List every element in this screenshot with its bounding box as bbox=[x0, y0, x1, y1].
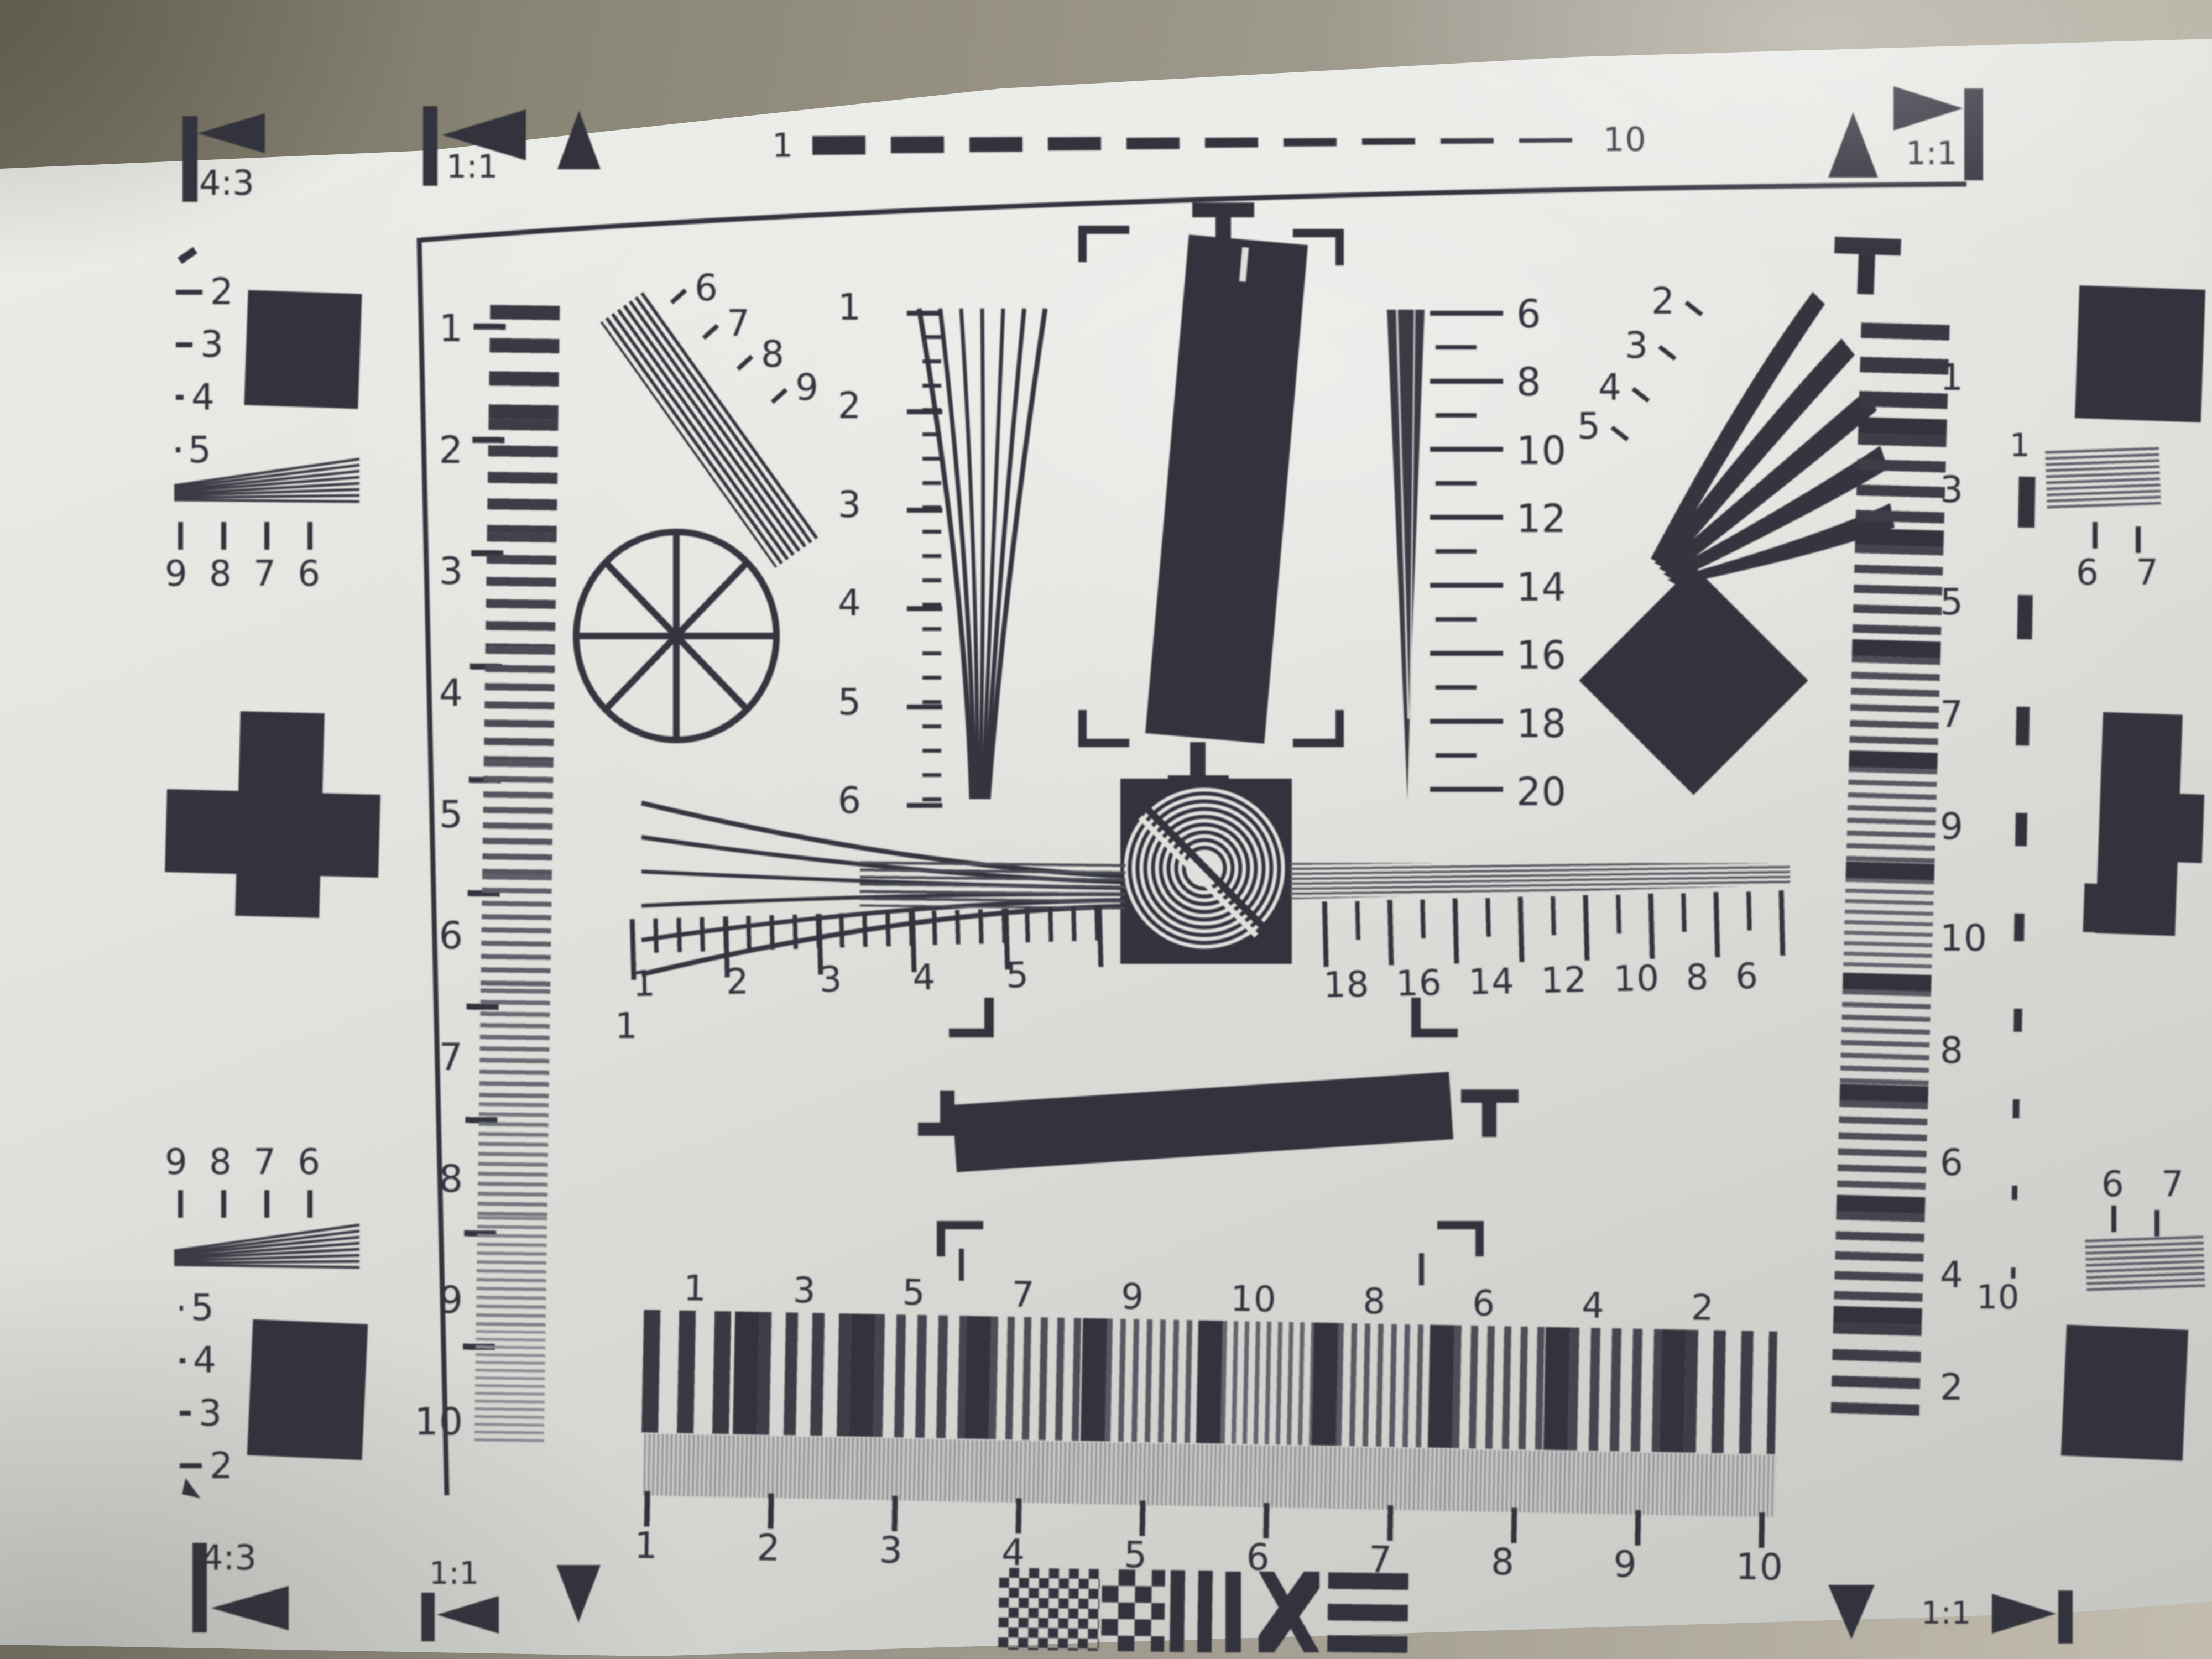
ruler-label: 12 bbox=[1541, 962, 1588, 999]
aspect-ratio-label: 4:3 bbox=[199, 166, 254, 200]
scale-label: 14 bbox=[1516, 568, 1610, 607]
black-square-patch bbox=[247, 1319, 368, 1460]
aspect-ratio-label: 1:1 bbox=[429, 1558, 479, 1589]
ruler-label: 18 bbox=[1323, 967, 1370, 1004]
dash bbox=[1441, 138, 1494, 144]
chart-logo-patterns bbox=[998, 1568, 1408, 1655]
depth-label: 3 bbox=[199, 1395, 222, 1432]
depth-scale-row: 2 bbox=[176, 274, 253, 310]
dash bbox=[1284, 138, 1337, 147]
scale-label: 5 bbox=[1940, 584, 1995, 620]
test-chart-artwork: 4:3 1:1 1:1 1 10 2345 9876 9876 5432 4:3 bbox=[0, 0, 2212, 1659]
scale-label: 7 bbox=[2136, 555, 2159, 591]
black-shape bbox=[2083, 883, 2107, 932]
ruler-label: 2 bbox=[757, 1530, 781, 1567]
depth-scale-row: 4 bbox=[176, 379, 253, 416]
scale-label: 4 bbox=[838, 585, 862, 622]
right-dash-scale-start: 1 bbox=[2010, 429, 2031, 461]
scale-label: 1 bbox=[838, 289, 862, 326]
depth-label: 2 bbox=[210, 274, 234, 310]
ruler-label: 6 bbox=[439, 917, 463, 955]
ruler-origin-label: 1 bbox=[615, 1009, 638, 1044]
scale-label: 9 bbox=[165, 556, 188, 592]
fine-checkerboard bbox=[998, 1568, 1100, 1651]
aspect-marker-1-1-bottom-right: 1:1 bbox=[1921, 1590, 2098, 1651]
coarse-checkerboard bbox=[1101, 1569, 1165, 1652]
diagonal-wedge-label: 6 bbox=[669, 270, 718, 306]
scale-label: 2 bbox=[1651, 283, 1675, 320]
ruler-label: 1 bbox=[439, 310, 463, 348]
scale-label: 7 bbox=[1011, 1277, 1035, 1313]
ruler-label: 5 bbox=[439, 796, 463, 834]
scale-label: 9 bbox=[165, 1145, 188, 1180]
depth-label: 2 bbox=[210, 1448, 233, 1484]
ruler-label: 6 bbox=[1735, 959, 1759, 995]
depth-scale-row: 4 bbox=[180, 1342, 257, 1379]
aspect-marker-1-1-bottom-left: 1:1 bbox=[421, 1556, 532, 1639]
depth-dash bbox=[180, 1306, 183, 1311]
black-cross-shape bbox=[165, 789, 380, 878]
scale-label: 5 bbox=[1577, 408, 1601, 445]
tick bbox=[2111, 1206, 2116, 1232]
ruler-label: 10 bbox=[414, 1404, 463, 1441]
scale-label: 8 bbox=[209, 556, 232, 592]
aspect-marker-4-3-bottom-left: 4:3 bbox=[192, 1541, 336, 1635]
black-shape bbox=[2095, 712, 2183, 936]
marker-bar bbox=[423, 106, 437, 186]
depth-scale-row: 5 bbox=[180, 1290, 257, 1326]
aspect-marker-4-3-top-left: 4:3 bbox=[182, 113, 348, 202]
wedge-scale-labels-bottom-left: 9876 bbox=[165, 1145, 321, 1180]
diagonal-wedge-label: 9 bbox=[770, 369, 819, 406]
curved-fan-label: 3 bbox=[1625, 327, 1677, 364]
scale-label: 8 bbox=[1363, 1284, 1386, 1320]
aspect-ratio-label: 1:1 bbox=[1921, 1598, 1971, 1629]
scale-label: 5 bbox=[902, 1275, 926, 1311]
depth-label: 4 bbox=[193, 1342, 217, 1379]
dash bbox=[1048, 137, 1101, 150]
scale-label: 7 bbox=[253, 1145, 276, 1180]
scale-label: 12 bbox=[1516, 499, 1610, 538]
aspect-marker-1-1-top-right: 1:1 bbox=[1893, 84, 2032, 184]
marker-bar bbox=[421, 1593, 435, 1641]
scale-label: 6 bbox=[2101, 1167, 2125, 1202]
scale-label: 4 bbox=[1582, 1288, 1605, 1324]
scale-label: 10 bbox=[1230, 1281, 1277, 1318]
right-edge-pair-labels: 67 bbox=[2101, 1167, 2184, 1202]
scale-label: 1 bbox=[1940, 359, 1995, 396]
top-dash-scale: 1 10 bbox=[772, 118, 1662, 166]
right-edge-pair-labels: 67 bbox=[2076, 555, 2159, 591]
dash bbox=[812, 135, 865, 155]
ruler-label: 8 bbox=[1491, 1544, 1515, 1581]
right-wedge-scale-labels: 68101214161820 bbox=[1516, 295, 1610, 811]
tick bbox=[737, 355, 754, 371]
tick bbox=[1631, 387, 1650, 403]
marker-bar bbox=[192, 1543, 207, 1632]
flag-triangle-icon bbox=[211, 1586, 289, 1630]
tick bbox=[1610, 426, 1629, 441]
vertical-bars-pattern bbox=[1170, 1570, 1215, 1652]
scale-label: 7 bbox=[2161, 1167, 2184, 1202]
black-square-patch bbox=[2061, 1324, 2188, 1460]
curved-fan-label: 2 bbox=[1651, 283, 1704, 320]
depth-dash bbox=[176, 342, 192, 347]
scale-label: 2 bbox=[838, 388, 862, 424]
scale-label: 6 bbox=[298, 1145, 321, 1180]
scale-label: 8 bbox=[209, 1145, 232, 1180]
scale-label: 6 bbox=[1516, 295, 1610, 333]
curved-fan-label: 4 bbox=[1598, 369, 1651, 406]
flag-triangle-icon bbox=[1992, 1594, 2056, 1634]
grating-patch bbox=[2085, 1235, 2205, 1293]
depth-dash bbox=[180, 1463, 202, 1468]
depth-label: 4 bbox=[191, 379, 215, 416]
ruler-label: 3 bbox=[879, 1532, 903, 1569]
ruler-label: 4 bbox=[439, 675, 463, 712]
scale-label: 3 bbox=[792, 1273, 816, 1309]
scale-label: 8 bbox=[1516, 363, 1610, 401]
scale-label: 4 bbox=[1598, 369, 1622, 406]
vertical-wedge-scale-labels: 123456 bbox=[813, 289, 862, 819]
ruler-label: 8 bbox=[1686, 960, 1709, 996]
left-ruler-labels: 12345678910 bbox=[410, 310, 463, 1441]
aspect-marker-1-1-top-mid: 1:1 bbox=[423, 106, 550, 189]
marker-bar bbox=[1964, 88, 1983, 180]
scale-label: 5 bbox=[838, 684, 862, 721]
ruler-label: 10 bbox=[1735, 1548, 1783, 1586]
ruler-label: 3 bbox=[439, 553, 463, 591]
ruler-label: 9 bbox=[1613, 1546, 1637, 1583]
fan-wedge-bottom-left bbox=[174, 1225, 359, 1267]
band-tick bbox=[1419, 1253, 1424, 1285]
depth-dash bbox=[180, 1358, 185, 1363]
flag-triangle-icon bbox=[1893, 86, 1963, 131]
depth-scale-top-left: 2345 bbox=[176, 274, 253, 468]
tick bbox=[2154, 1210, 2159, 1237]
ruler-label: 5 bbox=[1005, 958, 1029, 994]
tick bbox=[670, 289, 687, 305]
curved-fan-label: 5 bbox=[1577, 408, 1630, 445]
flag-triangle-icon bbox=[437, 1596, 499, 1634]
scale-label: 6 bbox=[1940, 1145, 1995, 1181]
diagonal-wedge-label: 8 bbox=[735, 336, 785, 373]
ruler-label: 4 bbox=[912, 960, 936, 996]
marker-bar bbox=[2058, 1590, 2073, 1644]
tick bbox=[2136, 526, 2141, 553]
depth-dash bbox=[176, 395, 184, 400]
ruler-label: 6 bbox=[1246, 1539, 1270, 1576]
marker-bar bbox=[182, 116, 197, 202]
scale-label: 6 bbox=[1472, 1286, 1496, 1322]
scale-label: 9 bbox=[1940, 808, 1995, 845]
scale-label: 6 bbox=[298, 556, 321, 592]
ruler-label: 9 bbox=[439, 1282, 463, 1319]
ruler-label: 5 bbox=[1124, 1537, 1148, 1574]
down-triangle-icon bbox=[1828, 1585, 1875, 1639]
tapering-needle bbox=[1387, 310, 1425, 801]
dash bbox=[1205, 137, 1258, 148]
down-triangle-icon bbox=[556, 1565, 601, 1623]
dash bbox=[969, 137, 1022, 152]
aspect-ratio-label: 1:1 bbox=[1906, 137, 1957, 169]
scale-label: 18 bbox=[1516, 705, 1610, 743]
depth-scale-row: 5 bbox=[176, 432, 253, 468]
ruler-label: 8 bbox=[439, 1161, 463, 1198]
tick bbox=[2093, 522, 2098, 549]
scale-label: 6 bbox=[838, 782, 862, 819]
aspect-ratio-label: 1:1 bbox=[446, 150, 498, 182]
black-shape bbox=[2176, 794, 2204, 863]
ruler-label: 3 bbox=[819, 962, 843, 998]
zone-plate-target bbox=[1120, 779, 1292, 964]
tick-row bbox=[178, 1190, 316, 1218]
scale-label: 7 bbox=[253, 556, 276, 592]
depth-dash bbox=[176, 447, 180, 452]
scale-label: 6 bbox=[2076, 555, 2099, 591]
wedge-scale-labels-top-left: 9876 bbox=[165, 556, 321, 592]
flag-triangle-icon bbox=[197, 113, 265, 153]
scale-label: 3 bbox=[838, 487, 862, 523]
ruler-label: 1 bbox=[634, 1527, 659, 1564]
dash bbox=[891, 136, 944, 153]
scale-label: 8 bbox=[761, 336, 785, 373]
black-square-patch bbox=[244, 290, 362, 409]
band-tick bbox=[959, 1249, 964, 1281]
dash bbox=[1126, 137, 1180, 149]
up-triangle-icon bbox=[1828, 112, 1878, 178]
depth-label: 5 bbox=[188, 432, 212, 468]
right-wedge-short-ticks bbox=[1436, 345, 1477, 799]
depth-dash bbox=[180, 1411, 191, 1416]
depth-scale-row: 3 bbox=[180, 1395, 257, 1432]
grating-patch bbox=[2045, 447, 2161, 510]
dash bbox=[1519, 138, 1572, 143]
ruler-label: 2 bbox=[726, 964, 749, 1000]
photo-of-resolution-test-chart: { "colors": {"ink":"#32333d","paper":"#d… bbox=[0, 0, 2212, 1659]
scale-label: 9 bbox=[1121, 1279, 1145, 1315]
frequency-bar-band bbox=[641, 1310, 1777, 1454]
depth-scale-bottom-left: 5432 bbox=[180, 1290, 257, 1484]
tick bbox=[702, 324, 719, 340]
diagonal-pattern-space bbox=[1214, 1571, 1321, 1654]
ruler-label: 4 bbox=[1001, 1535, 1025, 1572]
horizontal-bars-pattern bbox=[1327, 1572, 1408, 1655]
scale-start-label: 1 bbox=[772, 129, 794, 162]
ruler-label: 7 bbox=[439, 1039, 463, 1077]
depth-scale-row: 3 bbox=[176, 326, 253, 363]
scale-label: 2 bbox=[1691, 1290, 1714, 1326]
tick bbox=[1684, 301, 1703, 316]
ruler-label: 16 bbox=[1396, 966, 1443, 1002]
scale-end-label: 10 bbox=[1603, 123, 1647, 157]
tick bbox=[771, 388, 788, 404]
aspect-ratio-label: 4:3 bbox=[201, 1541, 257, 1575]
depth-dash bbox=[176, 290, 202, 295]
scale-label: 3 bbox=[1940, 472, 1995, 508]
white-notch bbox=[1239, 247, 1249, 282]
scale-label: 20 bbox=[1516, 773, 1610, 811]
ruler-label: 2 bbox=[439, 432, 463, 469]
scale-label: 10 bbox=[1940, 920, 1995, 957]
scale-label: 7 bbox=[1940, 696, 1995, 733]
scale-label: 3 bbox=[1625, 327, 1648, 364]
scale-label: 1 bbox=[684, 1271, 707, 1307]
up-triangle-icon bbox=[557, 111, 601, 169]
scale-label: 2 bbox=[1940, 1369, 1995, 1406]
right-strip-labels: 13579108642 bbox=[1940, 359, 1995, 1406]
horizontal-grating-band-left bbox=[860, 861, 1126, 909]
ruler-label: 14 bbox=[1468, 964, 1515, 1000]
scale-label: 6 bbox=[695, 270, 718, 306]
vertical-wedge-short-ticks bbox=[922, 335, 941, 811]
tick bbox=[1658, 345, 1676, 361]
depth-label: 5 bbox=[191, 1290, 215, 1326]
right-edge-label: 1 bbox=[2075, 371, 2096, 403]
scale-label: 8 bbox=[1940, 1032, 1995, 1069]
ruler-label: 1 bbox=[632, 966, 656, 1002]
depth-label: 3 bbox=[200, 326, 224, 363]
spoked-wheel bbox=[576, 532, 776, 740]
dash bbox=[1362, 138, 1415, 145]
ruler-label: 10 bbox=[1613, 961, 1660, 998]
right-dash-scale-end: 10 bbox=[1976, 1281, 2020, 1314]
tick-row bbox=[178, 522, 316, 550]
